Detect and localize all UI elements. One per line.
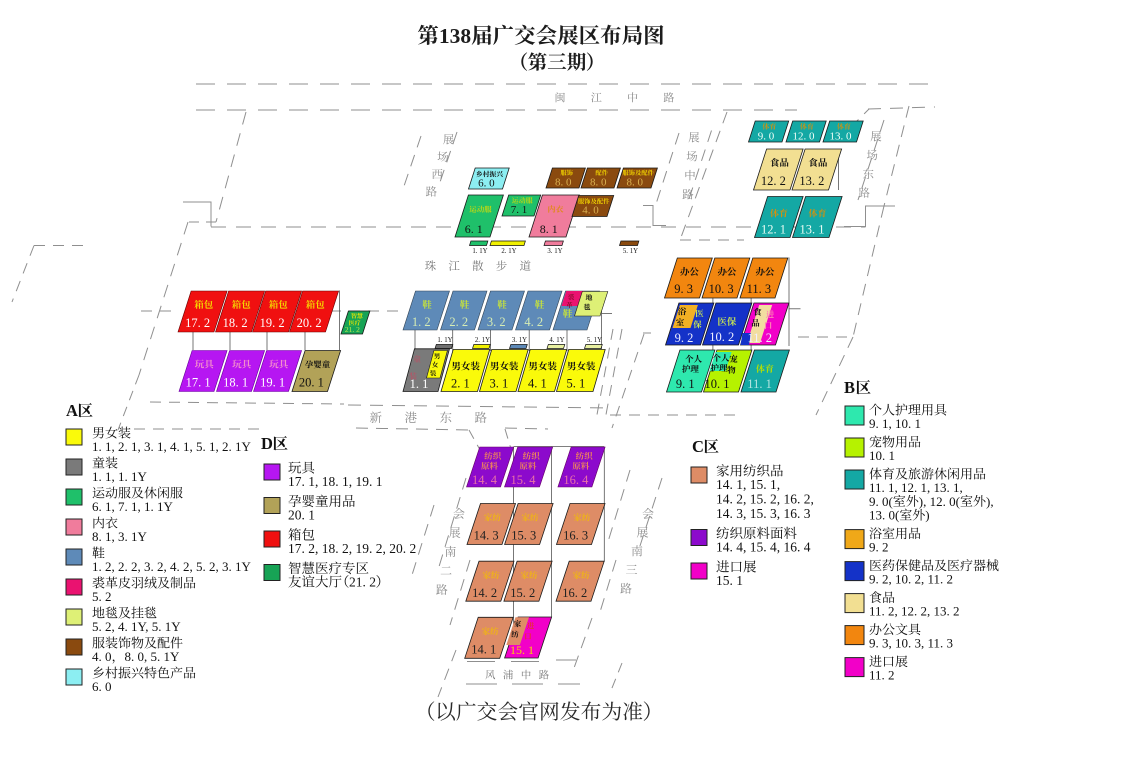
svg-text:1. 2: 1. 2: [412, 315, 431, 329]
svg-text:14. 1, 15. 1,: 14. 1, 15. 1,: [716, 477, 780, 492]
svg-text:10. 3: 10. 3: [709, 282, 734, 296]
svg-text:14. 3: 14. 3: [474, 529, 499, 543]
svg-text:8. 0: 8. 0: [590, 177, 607, 189]
svg-text:17. 1, 18. 1, 19. 1: 17. 1, 18. 1, 19. 1: [288, 474, 383, 489]
svg-text:6. 1, 7. 1, 1. 1Y: 6. 1, 7. 1, 1. 1Y: [92, 499, 174, 514]
svg-text:10. 1: 10. 1: [869, 448, 895, 463]
svg-text:14. 2, 15. 2, 16. 2,: 14. 2, 15. 2, 16. 2,: [716, 492, 814, 507]
svg-text:8. 0: 8. 0: [627, 177, 644, 189]
svg-text:15. 3: 15. 3: [511, 529, 536, 543]
svg-text:6. 1: 6. 1: [465, 222, 483, 236]
svg-text:7. 1: 7. 1: [511, 204, 528, 216]
svg-text:20. 1: 20. 1: [299, 376, 324, 390]
svg-text:2. 1: 2. 1: [451, 377, 470, 391]
svg-text:11. 1: 11. 1: [747, 377, 772, 391]
svg-text:6. 0: 6. 0: [92, 679, 112, 694]
svg-text:21. 2: 21. 2: [349, 575, 376, 590]
svg-text:19. 1: 19. 1: [260, 376, 285, 390]
svg-text:9. 2: 9. 2: [675, 331, 694, 345]
svg-text:13. 1: 13. 1: [800, 223, 825, 237]
svg-text:2. 1Y: 2. 1Y: [501, 248, 516, 255]
svg-text:11. 2: 11. 2: [869, 668, 895, 683]
svg-text:13. 0: 13. 0: [830, 131, 853, 143]
svg-text:D: D: [261, 434, 273, 453]
svg-text:4. 1: 4. 1: [528, 377, 547, 391]
svg-text:9. 1, 10. 1: 9. 1, 10. 1: [869, 416, 921, 431]
svg-text:3. 2: 3. 2: [487, 315, 506, 329]
svg-text:1. 1, 1. 1Y: 1. 1, 1. 1Y: [92, 469, 148, 484]
svg-text:8. 0: 8. 0: [555, 177, 572, 189]
svg-text:8. 1: 8. 1: [540, 222, 558, 236]
svg-text:1. 1: 1. 1: [410, 377, 429, 391]
svg-text:20. 1: 20. 1: [288, 508, 315, 523]
svg-text:18. 1: 18. 1: [223, 376, 248, 390]
svg-text:9. 0(: 9. 0(: [869, 494, 893, 509]
svg-text:13. 2: 13. 2: [799, 174, 824, 188]
svg-text:16. 3: 16. 3: [563, 529, 588, 543]
svg-text:5. 1Y: 5. 1Y: [623, 248, 638, 255]
svg-text:9. 2, 10. 2, 11. 2: 9. 2, 10. 2, 11. 2: [869, 572, 953, 587]
svg-text:5. 1: 5. 1: [567, 377, 586, 391]
svg-text:11. 1, 12. 1, 13. 1,: 11. 1, 12. 1, 13. 1,: [869, 480, 963, 495]
svg-text:14. 2: 14. 2: [472, 586, 497, 600]
svg-text:15. 1: 15. 1: [716, 573, 743, 588]
svg-text:5. 1Y: 5. 1Y: [587, 337, 602, 344]
svg-text:8. 0, 5. 1Y: 8. 0, 5. 1Y: [125, 649, 181, 664]
svg-text:12. 2: 12. 2: [761, 174, 786, 188]
svg-text:15. 4: 15. 4: [511, 473, 537, 487]
svg-text:5. 2: 5. 2: [92, 589, 112, 604]
svg-text:17. 2, 18. 2, 19. 2, 20. 2: 17. 2, 18. 2, 19. 2, 20. 2: [288, 541, 416, 556]
svg-text:15. 2: 15. 2: [510, 586, 535, 600]
svg-text:10. 2: 10. 2: [709, 330, 734, 344]
svg-text:10. 1: 10. 1: [705, 377, 730, 391]
svg-text:6. 0: 6. 0: [478, 178, 495, 190]
svg-text:14. 1: 14. 1: [471, 642, 496, 656]
svg-text:12. 0: 12. 0: [793, 131, 816, 143]
svg-text:11. 2, 12. 2, 13. 2: 11. 2, 12. 2, 13. 2: [869, 604, 960, 619]
svg-text:16. 4: 16. 4: [563, 473, 589, 487]
svg-text:5. 2, 4. 1Y, 5. 1Y: 5. 2, 4. 1Y, 5. 1Y: [92, 619, 181, 634]
svg-text:): ): [925, 508, 929, 523]
svg-text:20. 2: 20. 2: [297, 316, 322, 330]
svg-text:),: ),: [986, 494, 994, 509]
svg-text:18. 2: 18. 2: [223, 316, 248, 330]
svg-text:3. 1Y: 3. 1Y: [547, 248, 562, 255]
svg-text:8. 1, 3. 1Y: 8. 1, 3. 1Y: [92, 529, 148, 544]
svg-text:21. 2: 21. 2: [345, 325, 360, 334]
svg-text:4. 2: 4. 2: [524, 315, 543, 329]
svg-text:9. 3, 10. 3, 11. 3: 9. 3, 10. 3, 11. 3: [869, 636, 953, 651]
svg-text:3. 1Y: 3. 1Y: [512, 337, 527, 344]
svg-text:15. 1: 15. 1: [510, 643, 534, 657]
svg-text:14. 3, 15. 3, 16. 3: 14. 3, 15. 3, 16. 3: [716, 506, 811, 521]
svg-text:16. 2: 16. 2: [562, 586, 587, 600]
svg-text:2. 1Y: 2. 1Y: [475, 337, 490, 344]
svg-text:13. 0(: 13. 0(: [869, 508, 899, 523]
svg-text:1. 1, 2. 1, 3. 1, 4. 1, 5. 1,: 1. 1, 2. 1, 3. 1, 4. 1, 5. 1, 2. 1Y: [92, 439, 252, 454]
svg-text:2. 2: 2. 2: [449, 315, 468, 329]
svg-text:B: B: [844, 378, 855, 397]
svg-text:4. 1Y: 4. 1Y: [549, 337, 564, 344]
svg-text:17. 2: 17. 2: [185, 316, 210, 330]
svg-text:9. 3: 9. 3: [674, 282, 693, 296]
svg-text:1. 1Y: 1. 1Y: [472, 248, 487, 255]
svg-text:1. 1Y: 1. 1Y: [437, 337, 452, 344]
svg-text:9. 0: 9. 0: [758, 131, 775, 143]
svg-text:9. 1: 9. 1: [676, 377, 695, 391]
svg-text:14. 4: 14. 4: [472, 473, 498, 487]
svg-text:9. 2: 9. 2: [869, 540, 889, 555]
svg-text:4. 0: 4. 0: [92, 649, 112, 664]
svg-text:11. 2: 11. 2: [748, 331, 773, 345]
svg-text:C: C: [692, 437, 704, 456]
svg-text:138: 138: [439, 24, 472, 48]
svg-text:17. 1: 17. 1: [186, 376, 211, 390]
svg-text:4. 0: 4. 0: [582, 205, 599, 217]
svg-text:14. 4, 15. 4, 16. 4: 14. 4, 15. 4, 16. 4: [716, 540, 811, 555]
svg-text:3. 1: 3. 1: [490, 377, 509, 391]
svg-text:11. 3: 11. 3: [747, 282, 772, 296]
svg-text:A: A: [66, 401, 78, 420]
svg-text:), 12. 0(: ), 12. 0(: [919, 494, 960, 509]
svg-text:1. 2, 2. 2, 3. 2, 4. 2, 5. 2,: 1. 2, 2. 2, 3. 2, 4. 2, 5. 2, 3. 1Y: [92, 559, 252, 574]
svg-text:12. 1: 12. 1: [761, 223, 786, 237]
svg-text:19. 2: 19. 2: [260, 316, 285, 330]
